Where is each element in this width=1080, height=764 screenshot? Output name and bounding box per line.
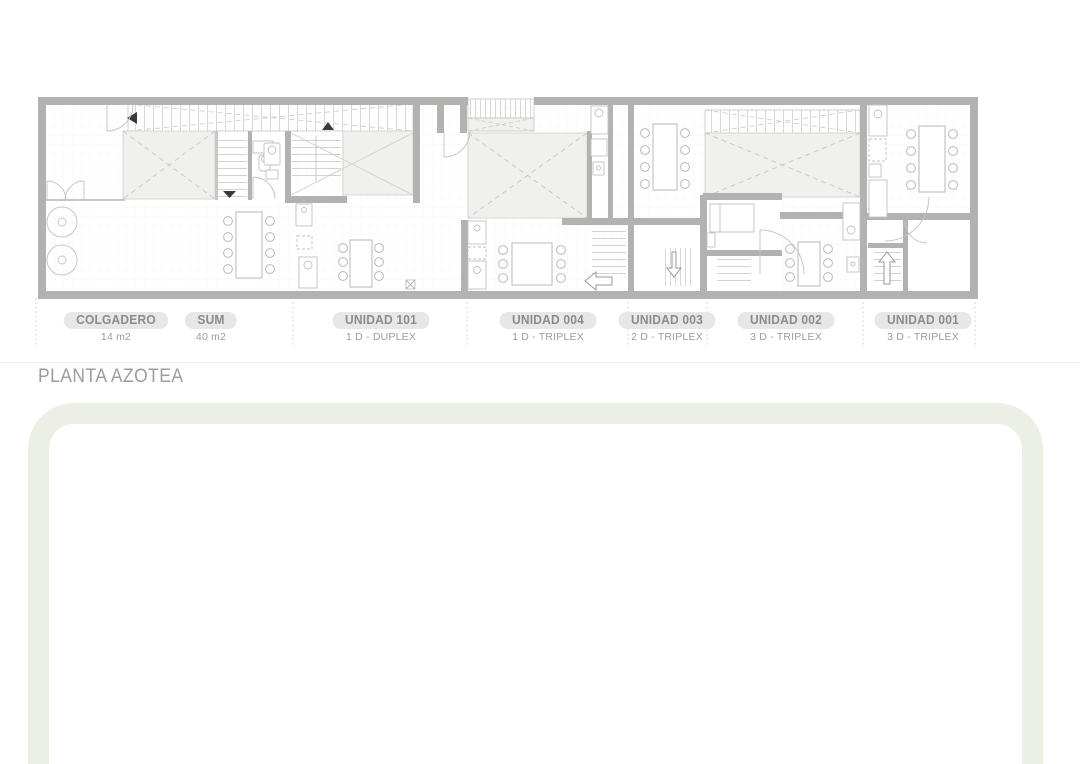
figure-divider-line (0, 362, 1080, 363)
label-subtitle: 3 D - TRIPLEX (736, 331, 837, 343)
label-subtitle: 1 D - DUPLEX (331, 331, 432, 343)
label-subtitle: 14 m2 (61, 331, 170, 343)
label-pill: COLGADERO (64, 312, 169, 329)
label-pill: UNIDAD 101 (333, 312, 430, 329)
label-unidad-003: UNIDAD 003 2 D - TRIPLEX (617, 311, 718, 343)
page: COLGADERO 14 m2 SUM 40 m2 UNIDAD 101 1 D… (0, 0, 1080, 764)
label-unidad-002: UNIDAD 002 3 D - TRIPLEX (736, 311, 837, 343)
label-pill: UNIDAD 001 (875, 312, 972, 329)
label-colgadero: COLGADERO 14 m2 (61, 311, 170, 343)
label-sum: SUM 40 m2 (184, 311, 238, 343)
label-unidad-001: UNIDAD 001 3 D - TRIPLEX (873, 311, 974, 343)
label-subtitle: 40 m2 (184, 331, 238, 343)
plan-title: PLANTA AZOTEA (38, 366, 184, 388)
label-subtitle: 3 D - TRIPLEX (873, 331, 974, 343)
label-unidad-101: UNIDAD 101 1 D - DUPLEX (331, 311, 432, 343)
label-pill: UNIDAD 004 (500, 312, 597, 329)
label-pill: UNIDAD 002 (738, 312, 835, 329)
label-pill: SUM (185, 312, 237, 329)
label-unidad-004: UNIDAD 004 1 D - TRIPLEX (498, 311, 599, 343)
label-subtitle: 2 D - TRIPLEX (617, 331, 718, 343)
label-subtitle: 1 D - TRIPLEX (498, 331, 599, 343)
decorative-rounded-frame (28, 403, 1043, 764)
label-pill: UNIDAD 003 (619, 312, 716, 329)
